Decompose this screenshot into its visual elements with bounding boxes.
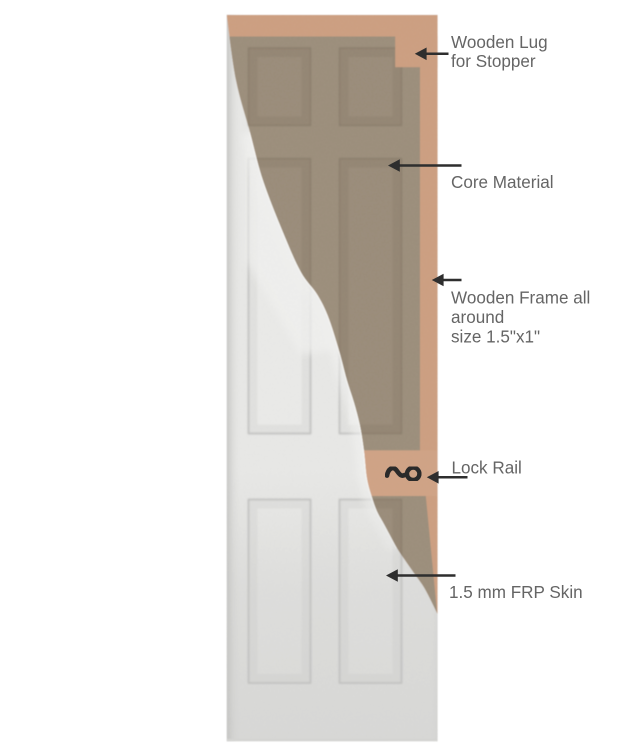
- svg-text:Wooden Frame all: Wooden Frame all: [451, 289, 590, 308]
- svg-text:Wooden Lug: Wooden Lug: [451, 33, 548, 52]
- svg-text:1.5 mm FRP Skin: 1.5 mm FRP Skin: [449, 583, 583, 602]
- svg-text:for Stopper: for Stopper: [451, 52, 536, 71]
- svg-text:size 1.5"x1": size 1.5"x1": [451, 328, 540, 347]
- svg-text:Core Material: Core Material: [451, 173, 554, 192]
- svg-text:around: around: [451, 308, 504, 327]
- svg-text:Lock Rail: Lock Rail: [452, 458, 522, 477]
